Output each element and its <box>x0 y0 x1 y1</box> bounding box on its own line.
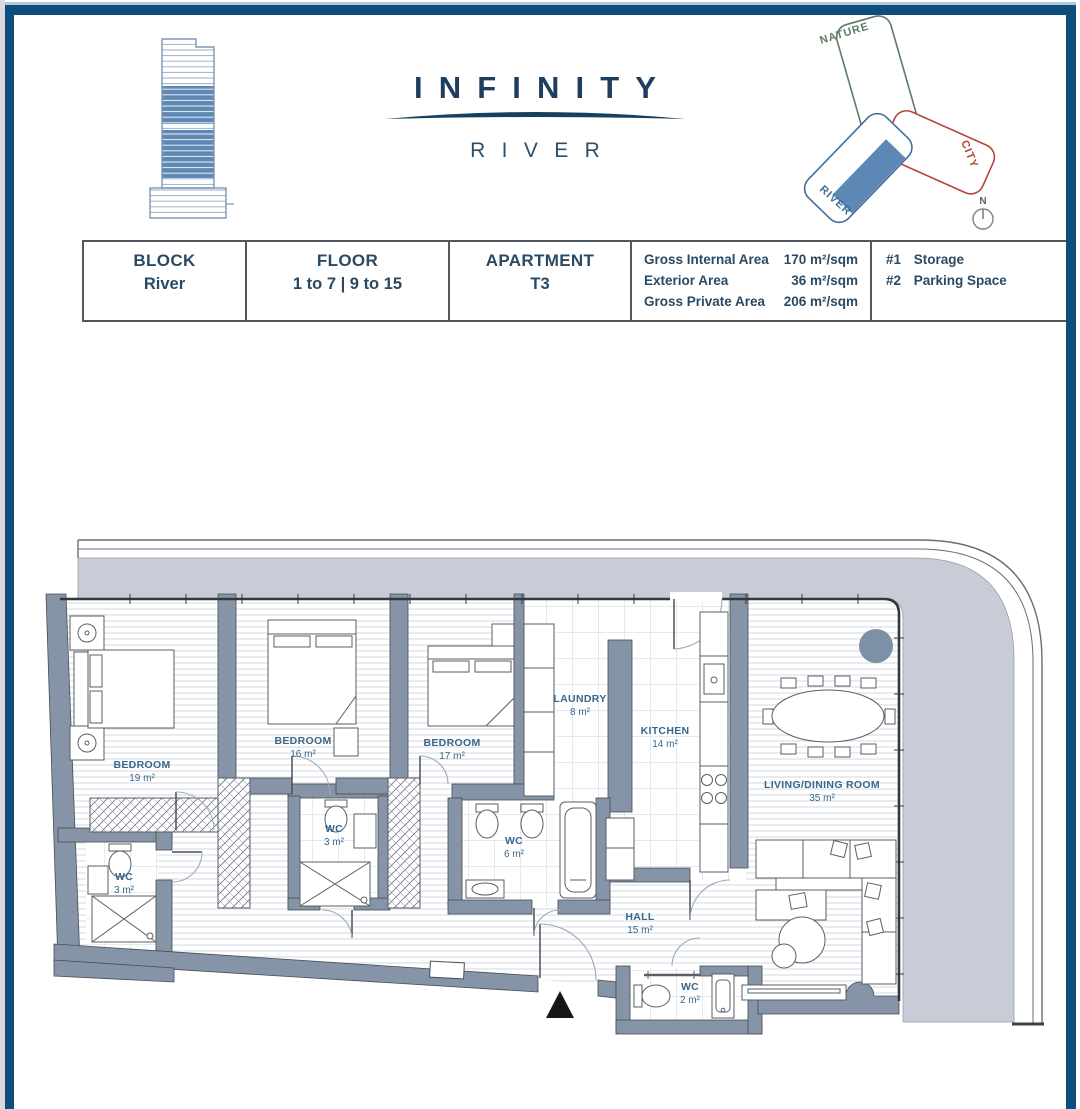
brochure-page: INFINITY RIVER NATURE CITY RIVER N BLOCK… <box>0 0 1080 1109</box>
area-row: Gross Internal Area 170 m²/sqm <box>644 249 858 270</box>
svg-text:2 m²: 2 m² <box>680 995 701 1006</box>
svg-text:LIVING/DINING ROOM: LIVING/DINING ROOM <box>764 779 880 791</box>
floor-value: 1 to 7 | 9 to 15 <box>247 275 448 294</box>
table-col-apartment: APARTMENT T3 <box>448 242 630 320</box>
logo-block: INFINITY RIVER <box>340 70 730 163</box>
table-col-block: BLOCK River <box>82 242 245 320</box>
svg-text:KITCHEN: KITCHEN <box>641 725 690 737</box>
svg-text:6 m²: 6 m² <box>504 849 525 860</box>
compass-north-label: N <box>979 196 986 207</box>
svg-text:WC: WC <box>325 823 343 835</box>
unit-info-table: BLOCK River FLOOR 1 to 7 | 9 to 15 APART… <box>82 240 1066 322</box>
svg-text:BEDROOM: BEDROOM <box>113 759 170 771</box>
svg-text:WC: WC <box>115 871 133 883</box>
area-row: Gross Private Area 206 m²/sqm <box>644 291 858 312</box>
block-header: BLOCK <box>84 251 245 271</box>
svg-text:WC: WC <box>681 981 699 993</box>
svg-text:BEDROOM: BEDROOM <box>423 737 480 749</box>
site-plan-diagram: NATURE CITY RIVER N <box>793 14 998 239</box>
svg-text:14 m²: 14 m² <box>652 739 678 750</box>
column <box>859 629 893 663</box>
svg-text:3 m²: 3 m² <box>324 837 345 848</box>
logo-swoosh <box>385 110 685 124</box>
extra-row: #2 Parking Space <box>886 270 1066 291</box>
floor-header: FLOOR <box>247 251 448 271</box>
apartment-header: APARTMENT <box>450 251 630 271</box>
table-col-extras: #1 Storage #2 Parking Space <box>870 242 1066 320</box>
extra-row: #1 Storage <box>886 249 1066 270</box>
block-value: River <box>84 275 245 294</box>
svg-text:15 m²: 15 m² <box>627 925 653 936</box>
table-col-floor: FLOOR 1 to 7 | 9 to 15 <box>245 242 448 320</box>
logo-subtitle: RIVER <box>340 139 730 163</box>
svg-text:WC: WC <box>505 835 523 847</box>
svg-text:19 m²: 19 m² <box>129 773 155 784</box>
area-row: Exterior Area 36 m²/sqm <box>644 270 858 291</box>
svg-text:16 m²: 16 m² <box>290 749 316 760</box>
svg-text:LAUNDRY: LAUNDRY <box>553 693 606 705</box>
table-col-areas: Gross Internal Area 170 m²/sqm Exterior … <box>630 242 870 320</box>
laundry-cabinets <box>524 624 554 796</box>
svg-text:8 m²: 8 m² <box>570 707 591 718</box>
apartment-value: T3 <box>450 275 630 294</box>
floor-plan: BEDROOM 19 m² BEDROOM 16 m² BEDROOM 17 m… <box>0 528 1080 1076</box>
svg-text:17 m²: 17 m² <box>439 751 465 762</box>
svg-text:HALL: HALL <box>625 911 655 923</box>
svg-text:3 m²: 3 m² <box>114 885 135 896</box>
hall-cabinet <box>430 961 465 979</box>
compass-icon: N <box>973 196 993 229</box>
logo-title: INFINITY <box>340 70 730 106</box>
svg-text:BEDROOM: BEDROOM <box>274 735 331 747</box>
building-tower-icon <box>148 36 252 226</box>
entrance-marker <box>546 991 574 1018</box>
svg-text:35 m²: 35 m² <box>809 793 835 804</box>
